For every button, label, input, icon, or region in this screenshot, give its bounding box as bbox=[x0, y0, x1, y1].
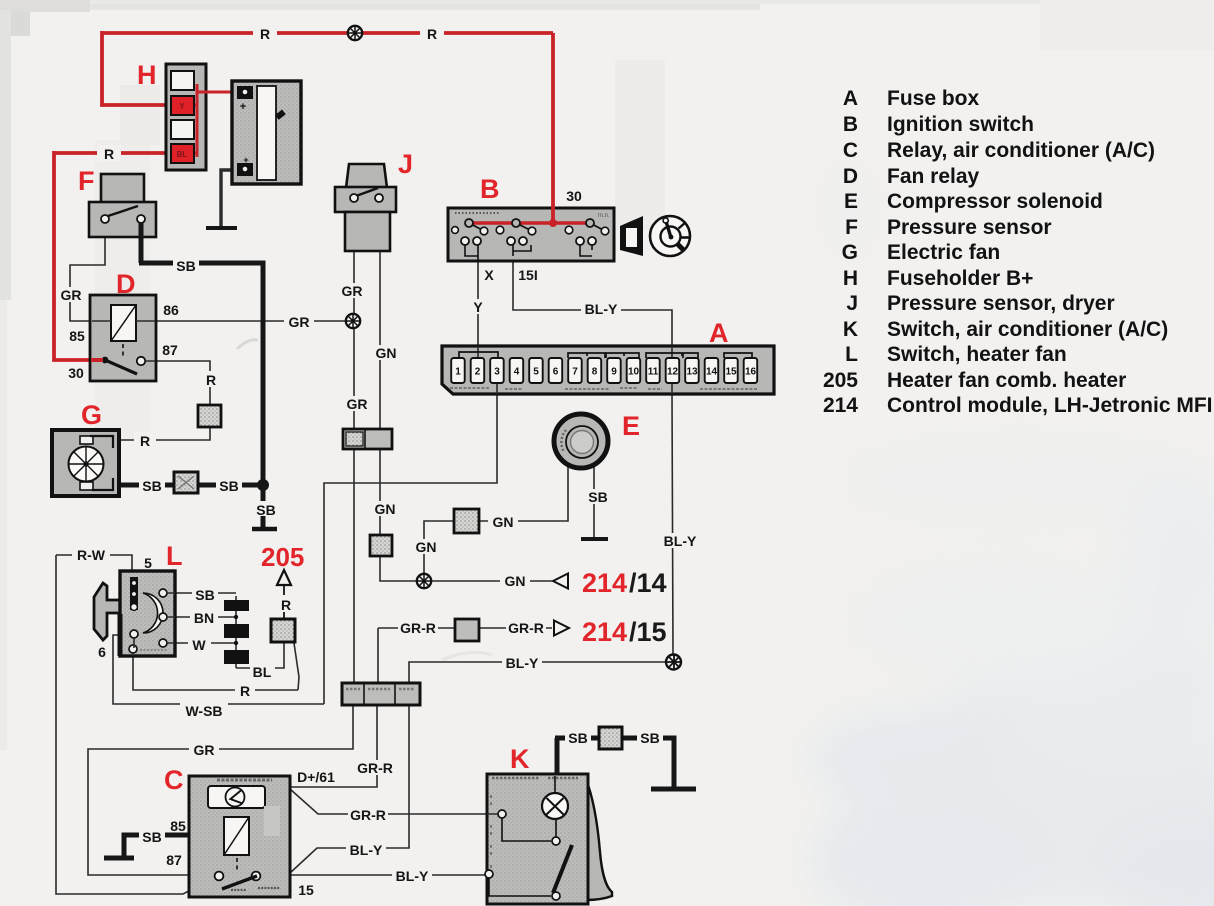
svg-text:SB: SB bbox=[588, 489, 607, 505]
svg-text:Compressor solenoid: Compressor solenoid bbox=[887, 190, 1103, 213]
svg-text:7: 7 bbox=[572, 367, 578, 378]
svg-text:Switch, air conditioner (A/C): Switch, air conditioner (A/C) bbox=[887, 318, 1168, 341]
svg-text:GR: GR bbox=[342, 283, 363, 299]
svg-text:Fuse box: Fuse box bbox=[887, 87, 980, 110]
svg-text:m.n.: m.n. bbox=[598, 213, 610, 219]
svg-text:87: 87 bbox=[166, 852, 182, 868]
svg-text:2: 2 bbox=[475, 367, 481, 378]
svg-text:9: 9 bbox=[611, 367, 617, 378]
svg-text:13: 13 bbox=[686, 367, 698, 378]
svg-text:10: 10 bbox=[628, 367, 640, 378]
svg-text:C: C bbox=[843, 139, 858, 162]
svg-text:F: F bbox=[845, 216, 858, 239]
svg-text:12: 12 bbox=[667, 367, 679, 378]
svg-text:BL-Y: BL-Y bbox=[506, 655, 539, 671]
svg-text:D: D bbox=[843, 165, 858, 188]
svg-text:BN: BN bbox=[194, 610, 214, 626]
svg-text:214: 214 bbox=[823, 394, 858, 417]
svg-text:15: 15 bbox=[725, 367, 737, 378]
svg-text:205: 205 bbox=[261, 542, 304, 572]
svg-text:Electric fan: Electric fan bbox=[887, 241, 1000, 264]
svg-text:GR: GR bbox=[194, 742, 215, 758]
svg-text:BL: BL bbox=[253, 664, 272, 680]
svg-text:6: 6 bbox=[553, 367, 559, 378]
svg-text:8: 8 bbox=[592, 367, 598, 378]
svg-text:R: R bbox=[427, 26, 437, 42]
svg-text:J: J bbox=[846, 292, 858, 315]
svg-text:L: L bbox=[845, 343, 858, 366]
svg-text:W: W bbox=[192, 637, 206, 653]
svg-text:BL-Y: BL-Y bbox=[585, 301, 618, 317]
svg-text:85: 85 bbox=[69, 328, 85, 344]
svg-text:H: H bbox=[843, 267, 858, 290]
svg-text:GR: GR bbox=[61, 287, 82, 303]
svg-text:6: 6 bbox=[98, 644, 106, 660]
svg-text:A: A bbox=[843, 87, 858, 110]
svg-text:E: E bbox=[622, 411, 640, 441]
svg-text:3: 3 bbox=[494, 367, 500, 378]
svg-text:Ignition switch: Ignition switch bbox=[887, 113, 1034, 136]
svg-text:R: R bbox=[260, 26, 270, 42]
svg-text:R: R bbox=[281, 597, 291, 613]
svg-text:214: 214 bbox=[582, 568, 627, 598]
svg-text:GR-R: GR-R bbox=[350, 807, 386, 823]
svg-text:A: A bbox=[709, 318, 729, 348]
svg-text:K: K bbox=[843, 318, 858, 341]
svg-text:205: 205 bbox=[823, 369, 858, 392]
svg-text:GR-R: GR-R bbox=[357, 760, 393, 776]
svg-text:R: R bbox=[140, 433, 150, 449]
svg-text:SB: SB bbox=[640, 730, 659, 746]
svg-text:X: X bbox=[484, 267, 494, 283]
svg-text:L: L bbox=[166, 541, 183, 571]
svg-text:1: 1 bbox=[455, 367, 461, 378]
svg-text:+: + bbox=[240, 101, 246, 113]
svg-text:SB: SB bbox=[142, 829, 161, 845]
svg-text:87: 87 bbox=[162, 342, 178, 358]
svg-text:BL-Y: BL-Y bbox=[350, 842, 383, 858]
svg-text:/14: /14 bbox=[629, 568, 667, 598]
svg-text:30: 30 bbox=[68, 365, 84, 381]
svg-text:Pressure sensor: Pressure sensor bbox=[887, 216, 1052, 239]
svg-text:11: 11 bbox=[648, 367, 659, 378]
svg-text:R-W: R-W bbox=[77, 547, 106, 563]
svg-text:214: 214 bbox=[582, 617, 627, 647]
svg-text:GN: GN bbox=[505, 573, 526, 589]
svg-text:Y: Y bbox=[179, 102, 185, 111]
svg-text:15: 15 bbox=[298, 882, 314, 898]
svg-text:GR-R: GR-R bbox=[508, 620, 544, 636]
svg-text:J: J bbox=[398, 149, 413, 179]
svg-text:GN: GN bbox=[376, 345, 397, 361]
svg-text:Pressure sensor, dryer: Pressure sensor, dryer bbox=[887, 292, 1115, 315]
svg-text:5: 5 bbox=[144, 555, 152, 571]
svg-text:15I: 15I bbox=[518, 267, 537, 283]
svg-text:Switch, heater fan: Switch, heater fan bbox=[887, 343, 1067, 366]
svg-text:R: R bbox=[206, 372, 216, 388]
svg-text:16: 16 bbox=[745, 367, 757, 378]
svg-text:SB: SB bbox=[195, 587, 214, 603]
svg-text:SB: SB bbox=[568, 730, 587, 746]
svg-text:Control module, LH-Jetronic MF: Control module, LH-Jetronic MFI bbox=[887, 394, 1213, 417]
svg-text:5: 5 bbox=[533, 367, 539, 378]
svg-text:+: + bbox=[243, 155, 248, 165]
svg-text:E: E bbox=[844, 190, 858, 213]
svg-text:BL: BL bbox=[177, 150, 188, 159]
svg-text:D+/61: D+/61 bbox=[297, 769, 335, 785]
svg-text:GN: GN bbox=[416, 539, 437, 555]
svg-text:SB: SB bbox=[176, 258, 195, 274]
svg-text:14: 14 bbox=[706, 367, 718, 378]
svg-text:R: R bbox=[240, 683, 250, 699]
svg-text:85: 85 bbox=[170, 818, 186, 834]
svg-text:GR: GR bbox=[289, 314, 310, 330]
svg-text:H: H bbox=[137, 60, 157, 90]
svg-text:K: K bbox=[510, 744, 530, 774]
svg-text:86: 86 bbox=[163, 302, 179, 318]
svg-text:/15: /15 bbox=[629, 617, 667, 647]
svg-text:Fan relay: Fan relay bbox=[887, 165, 980, 188]
svg-text:W-SB: W-SB bbox=[185, 703, 222, 719]
svg-text:R: R bbox=[104, 146, 114, 162]
svg-text:B: B bbox=[480, 174, 500, 204]
svg-text:Fuseholder B+: Fuseholder B+ bbox=[887, 267, 1033, 290]
svg-text:C: C bbox=[164, 765, 184, 795]
svg-text:GR-R: GR-R bbox=[400, 620, 436, 636]
svg-text:Heater fan comb. heater: Heater fan comb. heater bbox=[887, 369, 1126, 392]
svg-text:G: G bbox=[81, 400, 102, 430]
svg-text:Relay, air conditioner (A/C): Relay, air conditioner (A/C) bbox=[887, 139, 1155, 162]
svg-text:4: 4 bbox=[514, 367, 520, 378]
svg-text:D: D bbox=[116, 269, 136, 299]
svg-text:GN: GN bbox=[375, 501, 396, 517]
svg-text:30: 30 bbox=[566, 188, 582, 204]
svg-text:BL-Y: BL-Y bbox=[396, 868, 429, 884]
svg-text:Y: Y bbox=[473, 299, 483, 315]
svg-text:B: B bbox=[843, 113, 858, 136]
svg-text:SB: SB bbox=[219, 478, 238, 494]
svg-text:G: G bbox=[842, 241, 858, 264]
svg-text:BL-Y: BL-Y bbox=[664, 533, 697, 549]
svg-text:SB: SB bbox=[142, 478, 161, 494]
svg-text:SB: SB bbox=[256, 502, 275, 518]
svg-text:GN: GN bbox=[493, 514, 514, 530]
svg-text:F: F bbox=[78, 166, 95, 196]
svg-text:GR: GR bbox=[347, 396, 368, 412]
